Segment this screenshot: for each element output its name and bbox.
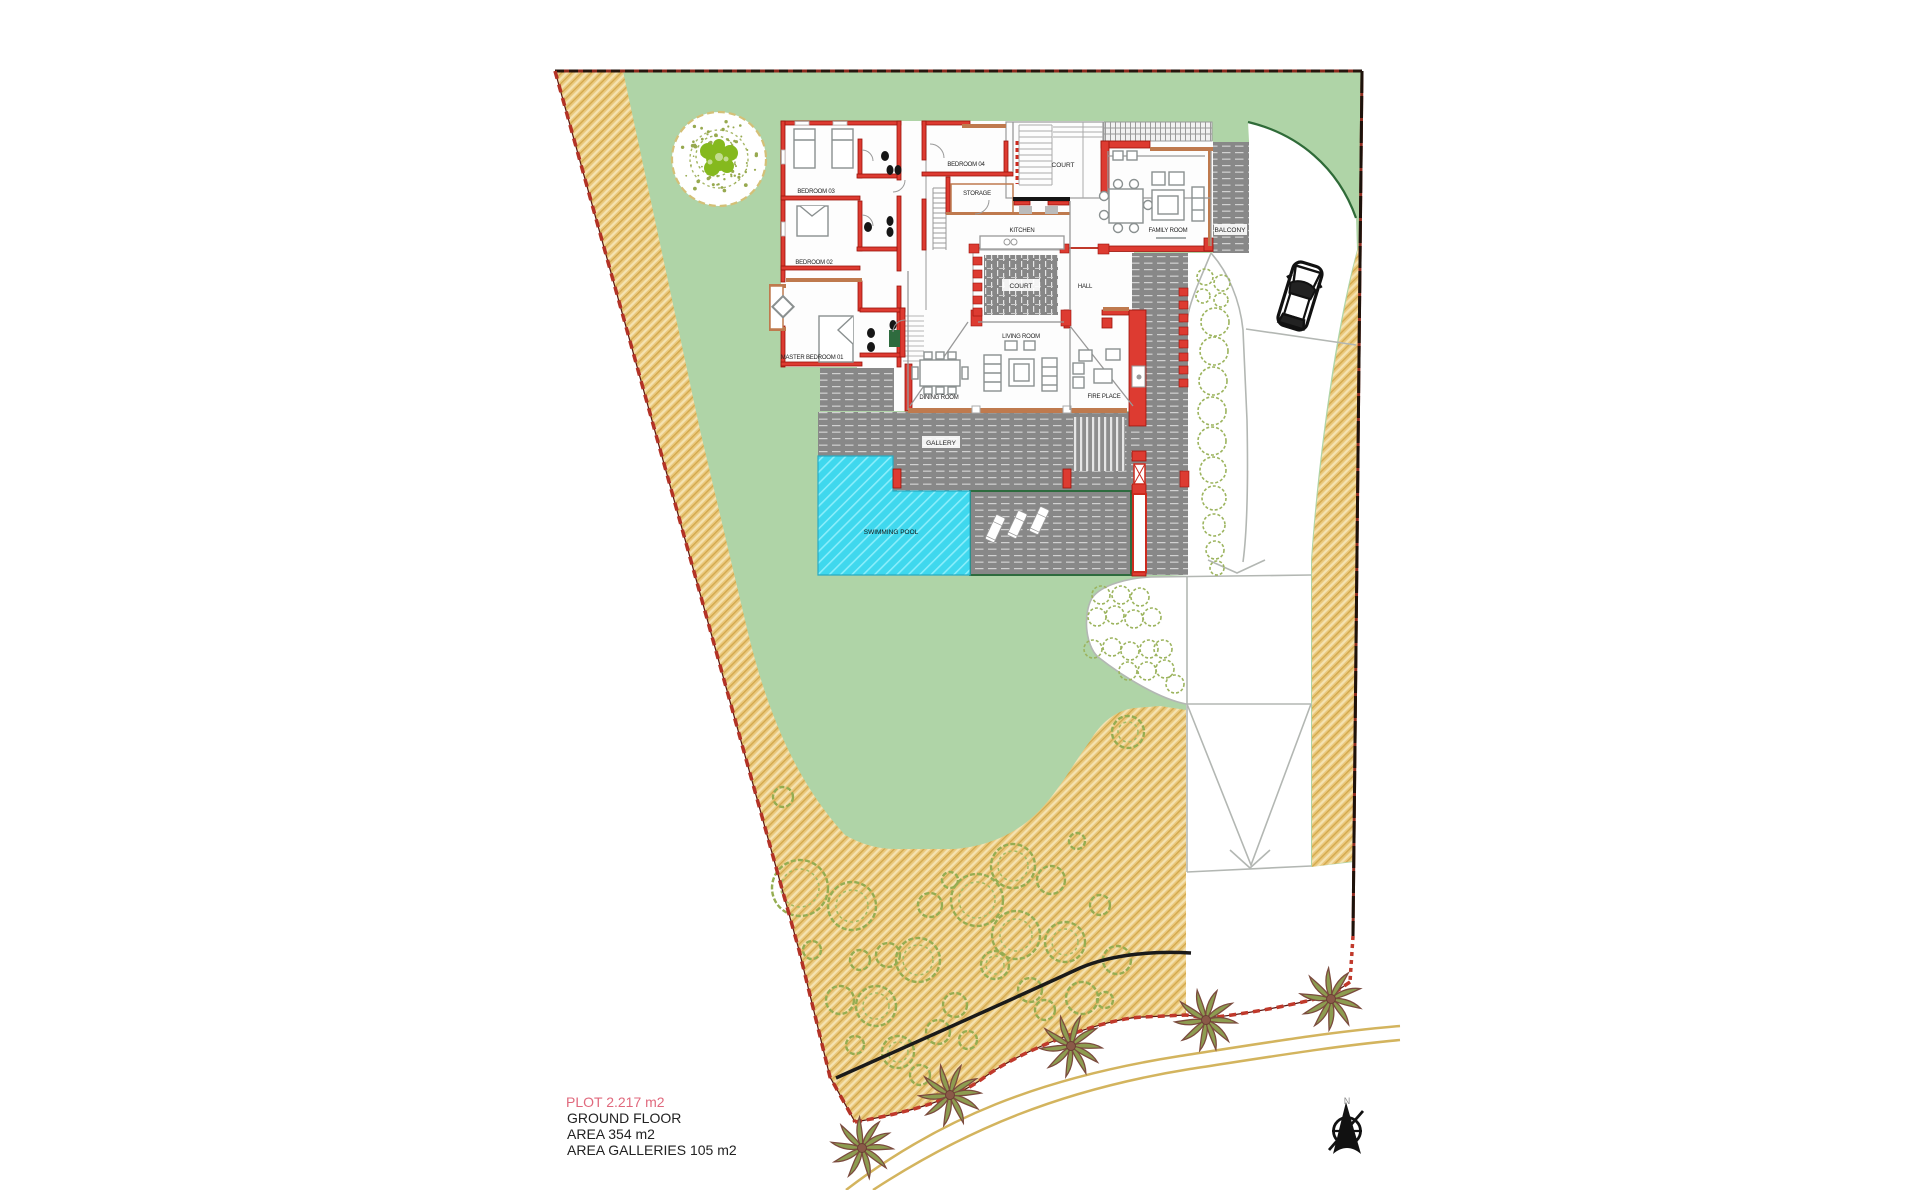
svg-text:GALLERY: GALLERY (926, 440, 957, 447)
svg-text:N: N (1344, 1096, 1351, 1106)
svg-text:PLOT 2.217 m2: PLOT 2.217 m2 (566, 1094, 665, 1110)
svg-text:MASTER BEDROOM 01: MASTER BEDROOM 01 (781, 355, 844, 361)
svg-text:SWIMMING POOL: SWIMMING POOL (864, 529, 919, 536)
svg-text:FAMILY ROOM: FAMILY ROOM (1149, 228, 1188, 234)
svg-text:BEDROOM 04: BEDROOM 04 (947, 162, 985, 168)
svg-text:FIRE PLACE: FIRE PLACE (1087, 394, 1120, 400)
svg-text:AREA GALLERIES 105 m2: AREA GALLERIES 105 m2 (567, 1142, 737, 1158)
svg-text:BEDROOM 02: BEDROOM 02 (795, 260, 833, 266)
svg-text:COURT: COURT (1010, 283, 1033, 290)
svg-text:AREA 354 m2: AREA 354 m2 (567, 1126, 655, 1142)
svg-text:HALL: HALL (1078, 284, 1093, 290)
svg-text:COURT: COURT (1052, 162, 1075, 169)
svg-text:DINING ROOM: DINING ROOM (919, 395, 958, 401)
svg-text:LIVING ROOM: LIVING ROOM (1002, 334, 1040, 340)
svg-text:GROUND FLOOR: GROUND FLOOR (567, 1110, 681, 1126)
svg-text:BEDROOM 03: BEDROOM 03 (797, 189, 835, 195)
svg-text:STORAGE: STORAGE (963, 191, 991, 197)
svg-text:BALCONY: BALCONY (1214, 227, 1246, 234)
svg-text:KITCHEN: KITCHEN (1010, 228, 1035, 234)
